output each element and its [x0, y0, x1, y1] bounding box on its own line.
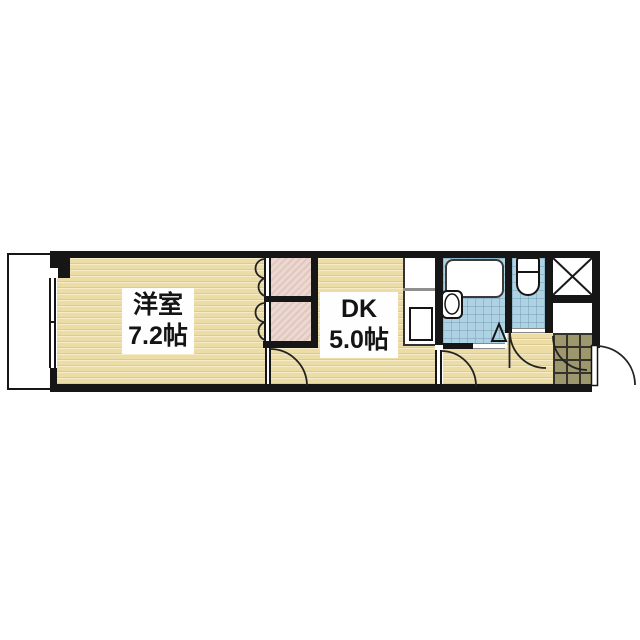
floor-plan: 洋室 7.2帖 DK 5.0帖 [0, 0, 640, 640]
toilet-tank-line [518, 271, 538, 273]
door-leaf-dk-hall [435, 350, 442, 384]
door-leaf-west-dk [265, 348, 271, 386]
dk-size: 5.0帖 [320, 325, 398, 356]
passage-floor [271, 348, 318, 384]
hallway-floor-2 [507, 333, 553, 349]
wall-right [592, 251, 600, 348]
wall-toilet-right [545, 251, 553, 333]
wall-left-lower [50, 368, 57, 384]
wall-bottom [50, 384, 592, 392]
window-left [49, 278, 56, 368]
balcony [7, 253, 52, 390]
window-center-tick [49, 321, 56, 323]
wall-bath-toilet [505, 251, 512, 333]
alcove-box [553, 303, 592, 330]
washbasin [441, 290, 463, 319]
western-room-name: 洋室 [122, 290, 194, 321]
wall-left-notch [50, 268, 58, 278]
wall-dk-bath [435, 255, 443, 345]
toilet-door-threshold [511, 328, 545, 333]
western-room-label: 洋室 7.2帖 [122, 288, 194, 354]
bath-door-threshold [473, 343, 505, 349]
kitchen-sink [409, 307, 433, 341]
dk-label: DK 5.0帖 [320, 292, 398, 358]
entrance-door-swing [596, 346, 635, 385]
toilet [516, 257, 540, 296]
western-room-size: 7.2帖 [122, 321, 194, 352]
entrance-door-slab [592, 346, 598, 386]
pipe-space-box [553, 258, 592, 295]
closet-upper [271, 258, 311, 296]
wall-closet-right [311, 258, 318, 348]
dk-name: DK [320, 294, 398, 325]
wall-bath-bottom [443, 343, 473, 349]
wall-pipe-space-bottom [553, 295, 592, 303]
wall-closet-mid [265, 296, 318, 302]
wall-closet-bottom [263, 341, 318, 348]
kitchen-counter-divider [403, 288, 435, 291]
hallway-floor [443, 348, 553, 384]
closet-lower [271, 302, 311, 341]
wall-top [50, 251, 600, 258]
genkan-tile [553, 333, 592, 384]
